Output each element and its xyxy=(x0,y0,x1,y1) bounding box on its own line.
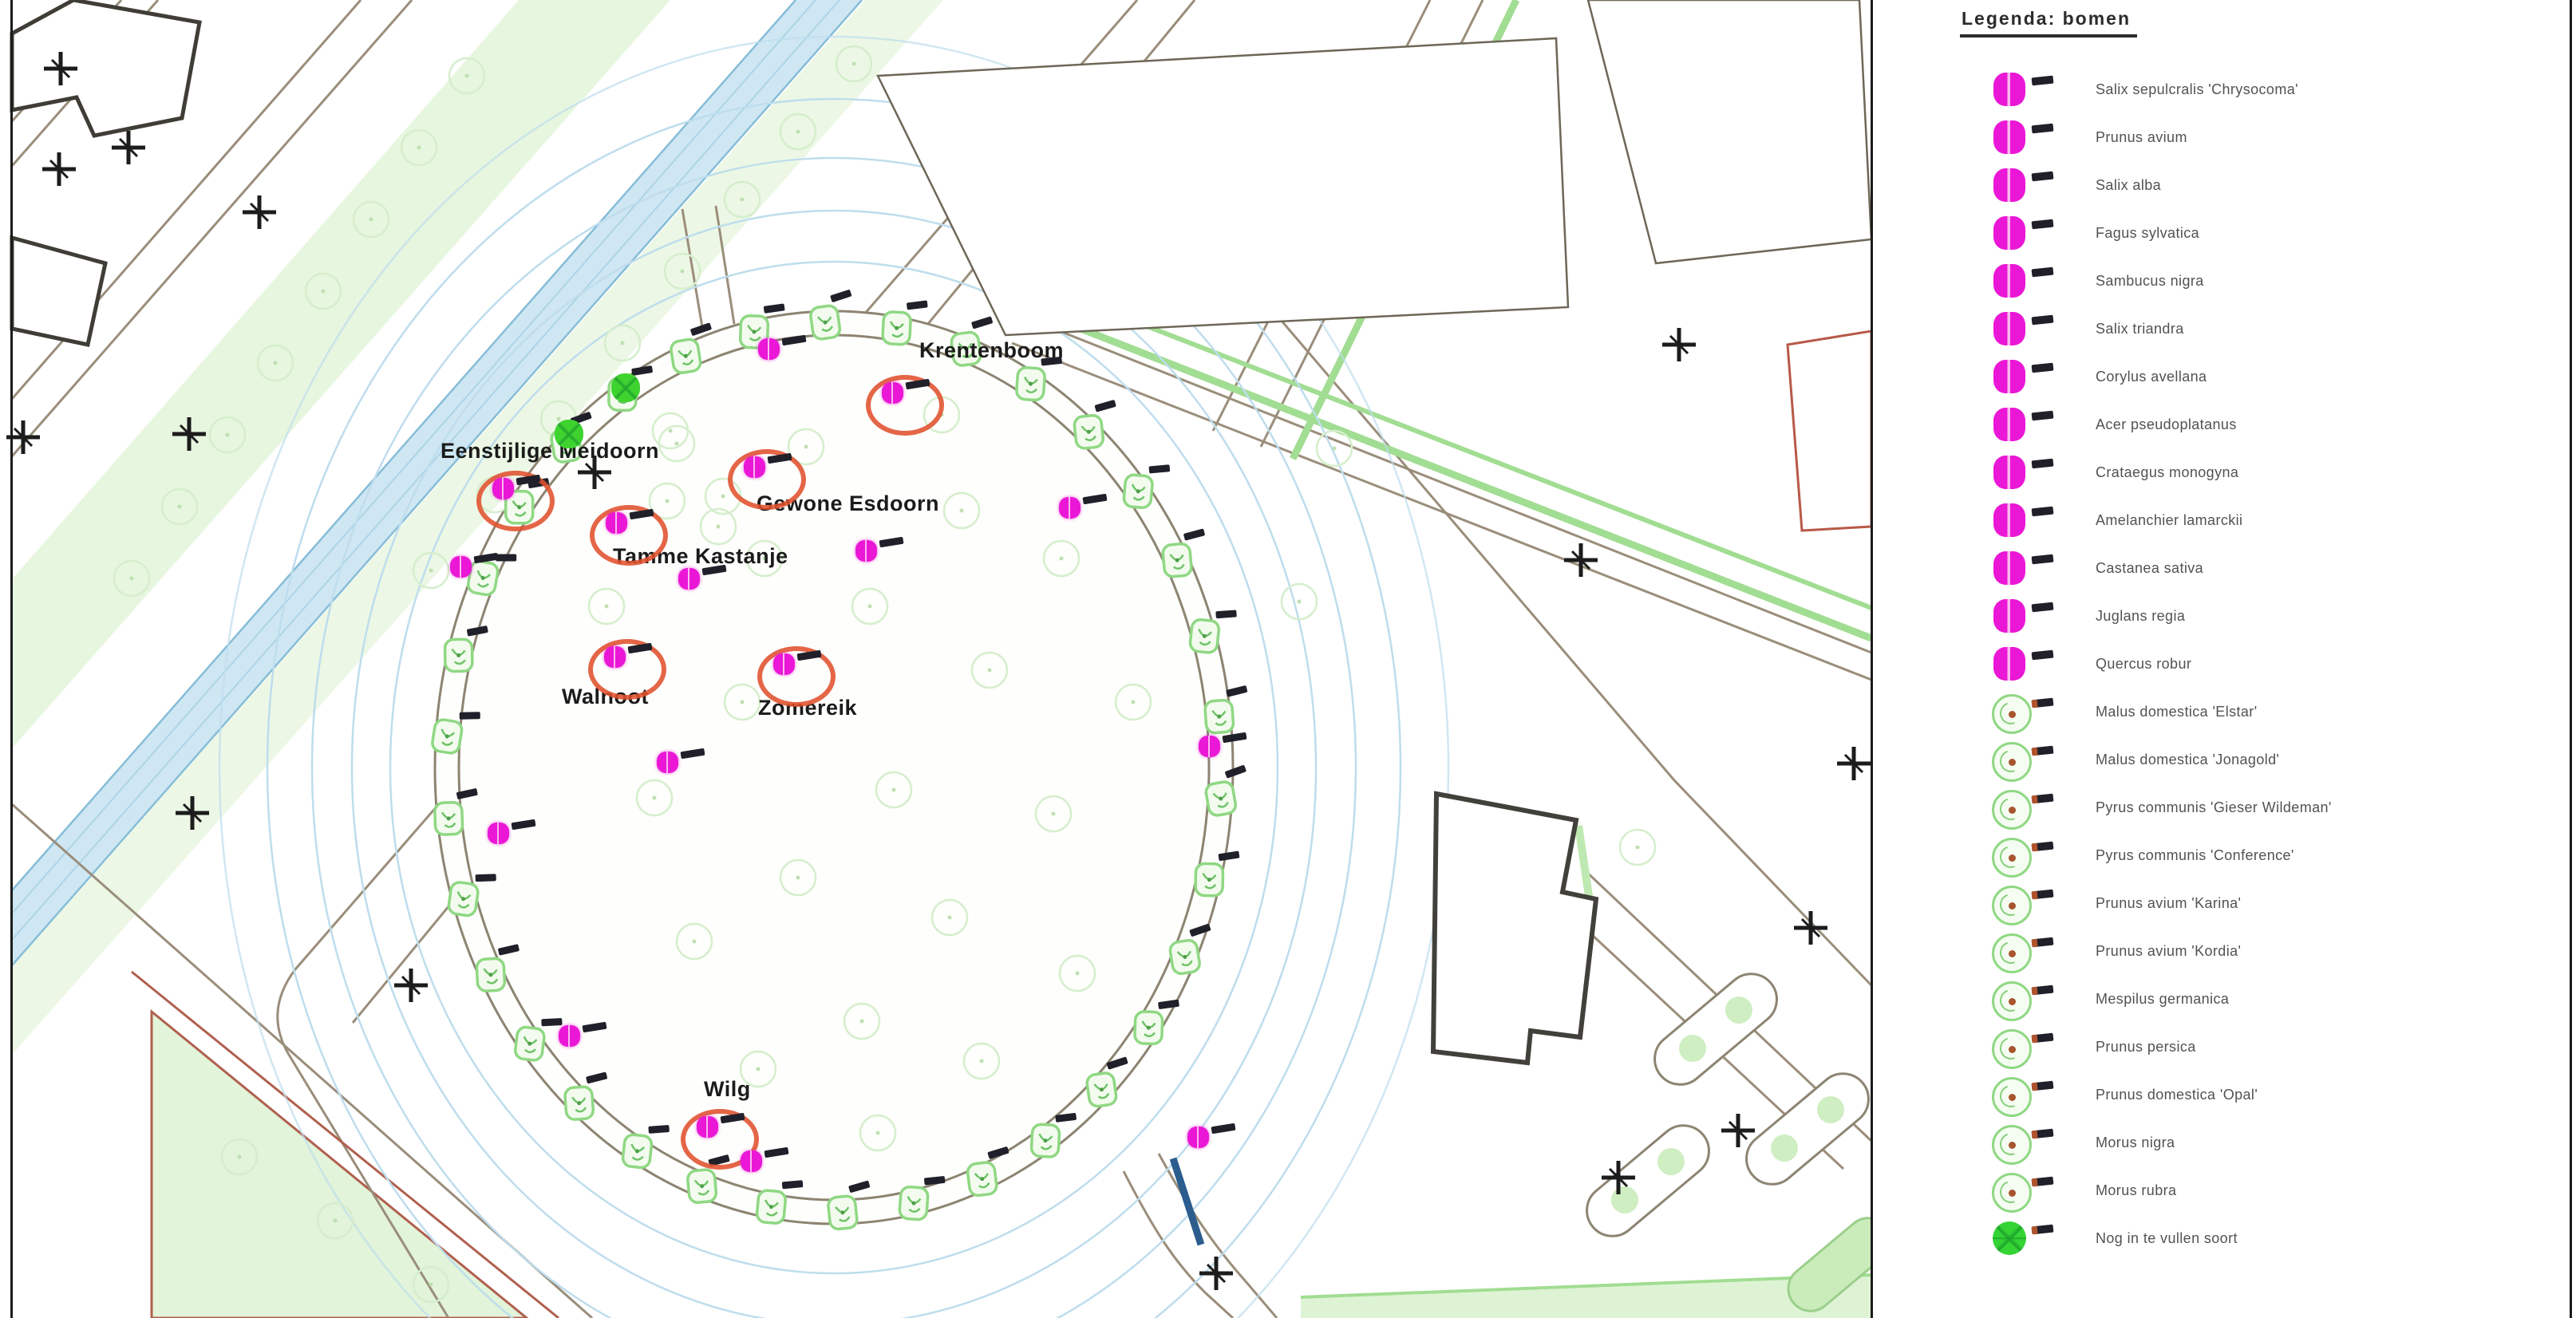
magenta-tree-icon xyxy=(1993,599,2025,633)
legend-symbol-cell xyxy=(1947,161,2096,209)
legend-panel: Legenda: bomen Salix sepulcralis 'Chryso… xyxy=(1947,8,2562,37)
tree-id-tag xyxy=(2032,363,2054,373)
planted-tree-dot xyxy=(559,1025,580,1047)
legend-item: Juglans regia xyxy=(1947,592,2562,640)
new-tree-blob xyxy=(611,373,640,402)
planted-tree-dot xyxy=(744,456,765,478)
tree-id-tag xyxy=(2032,794,2054,804)
tree-id-tag xyxy=(2032,937,2054,948)
map-overlay: KrentenboomEenstijlige MeidoornGewone Es… xyxy=(0,0,1871,1318)
magenta-tree-icon xyxy=(1993,503,2025,537)
green-tree-tree-icon xyxy=(1992,1125,2032,1165)
map-frame-right xyxy=(1871,0,1873,1318)
legend-item: Sambucus nigra xyxy=(1947,257,2562,305)
planted-tree-dot xyxy=(450,556,472,578)
magenta-tree-icon xyxy=(1993,312,2025,345)
planted-tree-dot xyxy=(741,1150,762,1172)
green-solid-tree-icon xyxy=(1993,1221,2026,1255)
legend-symbol-cell xyxy=(1947,257,2096,305)
legend-label: Sambucus nigra xyxy=(2096,273,2204,290)
legend-symbol-cell xyxy=(1947,1119,2096,1166)
legend-symbol-cell xyxy=(1947,209,2096,257)
legend-rows: Salix sepulcralis 'Chrysocoma'Prunus avi… xyxy=(1947,65,2562,1262)
legend-item: Salix sepulcralis 'Chrysocoma' xyxy=(1947,65,2562,113)
magenta-tree-icon xyxy=(1993,647,2025,681)
tree-id-tag xyxy=(511,819,535,831)
legend-label: Prunus avium xyxy=(2096,129,2187,146)
green-tree-tree-icon xyxy=(1992,981,2032,1021)
legend-item: Prunus avium 'Karina' xyxy=(1947,879,2562,927)
legend-symbol-cell xyxy=(1947,544,2096,592)
legend-label: Prunus persica xyxy=(2096,1039,2196,1056)
tree-id-tag xyxy=(2032,1033,2054,1044)
planted-tree-dot xyxy=(604,646,626,668)
legend-label: Amelanchier lamarckii xyxy=(2096,512,2242,529)
legend-label: Nog in te vullen soort xyxy=(2096,1230,2238,1247)
planted-tree-dot xyxy=(773,653,795,675)
legend-item: Castanea sativa xyxy=(1947,544,2562,592)
legend-symbol-cell xyxy=(1947,496,2096,544)
tree-id-tag xyxy=(2032,746,2054,756)
sheet-edge-right xyxy=(2570,0,2572,1318)
legend-label: Acer pseudoplatanus xyxy=(2096,416,2237,433)
tree-id-tag xyxy=(2032,507,2054,517)
legend-label: Prunus avium 'Karina' xyxy=(2096,895,2241,912)
tree-id-tag xyxy=(764,1147,788,1158)
planted-tree-dot xyxy=(697,1116,718,1138)
site-plan-screenshot: KrentenboomEenstijlige MeidoornGewone Es… xyxy=(0,0,2576,1318)
tree-id-tag xyxy=(2032,124,2054,134)
planted-tree-dot xyxy=(882,382,903,404)
legend-label: Prunus domestica 'Opal' xyxy=(2096,1087,2258,1103)
new-tree-blob xyxy=(555,420,583,448)
map-frame-left xyxy=(10,0,13,1318)
planted-tree-dot xyxy=(758,338,780,360)
legend-item: Crataegus monogyna xyxy=(1947,448,2562,496)
legend-item: Prunus avium xyxy=(1947,113,2562,161)
legend-item: Nog in te vullen soort xyxy=(1947,1214,2562,1262)
magenta-tree-icon xyxy=(1993,264,2025,298)
legend-symbol-cell xyxy=(1947,736,2096,783)
tree-name-label: Eenstijlige Meidoorn xyxy=(441,439,659,464)
legend-item: Quercus robur xyxy=(1947,640,2562,688)
planted-tree-dot xyxy=(657,752,678,773)
legend-label: Morus rubra xyxy=(2096,1182,2176,1199)
legend-label: Malus domestica 'Elstar' xyxy=(2096,704,2258,720)
tree-id-tag xyxy=(2032,411,2054,421)
tree-id-tag xyxy=(2032,890,2054,900)
green-tree-tree-icon xyxy=(1992,790,2032,830)
legend-item: Acer pseudoplatanus xyxy=(1947,401,2562,448)
legend-item: Morus rubra xyxy=(1947,1166,2562,1214)
tree-id-tag xyxy=(2032,267,2054,278)
legend-label: Juglans regia xyxy=(2096,608,2185,625)
green-tree-tree-icon xyxy=(1992,742,2032,782)
planted-tree-dot xyxy=(488,823,509,844)
legend-label: Pyrus communis 'Gieser Wildeman' xyxy=(2096,799,2332,816)
tree-id-tag xyxy=(2032,698,2054,708)
tree-id-tag xyxy=(1222,732,1247,744)
tree-id-tag xyxy=(2032,219,2054,230)
magenta-tree-icon xyxy=(1993,360,2025,393)
legend-symbol-cell xyxy=(1947,879,2096,927)
tree-id-tag xyxy=(473,553,498,564)
legend-symbol-cell xyxy=(1947,448,2096,496)
legend-item: Corylus avellana xyxy=(1947,353,2562,401)
legend-item: Pyrus communis 'Gieser Wildeman' xyxy=(1947,783,2562,831)
tree-id-tag xyxy=(2032,1129,2054,1139)
magenta-tree-icon xyxy=(1993,408,2025,441)
legend-item: Prunus persica xyxy=(1947,1023,2562,1071)
legend-label: Prunus avium 'Kordia' xyxy=(2096,943,2241,960)
tree-id-tag xyxy=(2032,315,2054,326)
legend-label: Crataegus monogyna xyxy=(2096,464,2238,481)
tree-id-tag xyxy=(879,537,903,548)
tree-id-tag xyxy=(582,1022,606,1033)
planted-tree-dot xyxy=(1059,497,1081,519)
tree-id-tag xyxy=(2032,650,2054,661)
tree-id-tag xyxy=(2032,459,2054,469)
tree-id-tag xyxy=(2032,1225,2054,1235)
legend-title: Legenda: bomen xyxy=(1960,8,2137,37)
planted-tree-dot xyxy=(855,540,877,562)
tree-id-tag xyxy=(2032,1177,2054,1187)
legend-symbol-cell xyxy=(1947,305,2096,353)
tree-id-tag xyxy=(2032,842,2054,852)
green-tree-tree-icon xyxy=(1992,1077,2032,1117)
legend-symbol-cell xyxy=(1947,783,2096,831)
magenta-tree-icon xyxy=(1993,216,2025,250)
legend-item: Prunus domestica 'Opal' xyxy=(1947,1071,2562,1119)
magenta-tree-icon xyxy=(1993,456,2025,489)
planted-tree-dot xyxy=(1187,1127,1209,1148)
legend-label: Salix sepulcralis 'Chrysocoma' xyxy=(2096,81,2298,98)
tree-id-tag xyxy=(2032,602,2054,613)
legend-item: Pyrus communis 'Conference' xyxy=(1947,831,2562,879)
tree-id-tag xyxy=(2032,76,2054,86)
legend-symbol-cell xyxy=(1947,401,2096,448)
legend-label: Pyrus communis 'Conference' xyxy=(2096,847,2294,864)
magenta-tree-icon xyxy=(1993,73,2025,106)
tree-id-tag xyxy=(781,335,806,346)
legend-label: Mespilus germanica xyxy=(2096,991,2229,1008)
legend-label: Salix alba xyxy=(2096,177,2161,194)
legend-item: Amelanchier lamarckii xyxy=(1947,496,2562,544)
magenta-tree-icon xyxy=(1993,551,2025,585)
legend-symbol-cell xyxy=(1947,1023,2096,1071)
tree-id-tag xyxy=(2032,172,2054,182)
legend-item: Morus nigra xyxy=(1947,1119,2562,1166)
legend-item: Fagus sylvatica xyxy=(1947,209,2562,257)
legend-symbol-cell xyxy=(1947,975,2096,1023)
legend-item: Malus domestica 'Elstar' xyxy=(1947,688,2562,736)
legend-item: Mespilus germanica xyxy=(1947,975,2562,1023)
legend-label: Fagus sylvatica xyxy=(2096,225,2199,242)
legend-symbol-cell xyxy=(1947,1071,2096,1119)
tree-id-tag xyxy=(1211,1123,1235,1135)
tree-id-tag xyxy=(2032,554,2054,565)
green-tree-tree-icon xyxy=(1992,694,2032,734)
tree-id-tag xyxy=(2032,985,2054,996)
tree-name-label: Wilg xyxy=(704,1077,751,1102)
legend-label: Castanea sativa xyxy=(2096,560,2203,577)
legend-symbol-cell xyxy=(1947,831,2096,879)
legend-item: Prunus avium 'Kordia' xyxy=(1947,927,2562,975)
legend-label: Morus nigra xyxy=(2096,1135,2175,1151)
legend-label: Quercus robur xyxy=(2096,656,2191,673)
legend-symbol-cell xyxy=(1947,1214,2096,1262)
tree-id-tag xyxy=(680,748,705,760)
legend-symbol-cell xyxy=(1947,1166,2096,1214)
legend-symbol-cell xyxy=(1947,113,2096,161)
legend-item: Salix alba xyxy=(1947,161,2562,209)
legend-label: Corylus avellana xyxy=(2096,369,2207,385)
green-tree-tree-icon xyxy=(1992,1173,2032,1213)
planted-tree-dot xyxy=(492,478,514,499)
tree-id-tag xyxy=(1082,494,1107,505)
legend-symbol-cell xyxy=(1947,353,2096,401)
planted-tree-dot xyxy=(1199,736,1220,757)
green-tree-tree-icon xyxy=(1992,933,2032,973)
tree-id-tag xyxy=(2032,1081,2054,1091)
green-tree-tree-icon xyxy=(1992,886,2032,925)
magenta-tree-icon xyxy=(1993,120,2025,154)
legend-item: Malus domestica 'Jonagold' xyxy=(1947,736,2562,783)
magenta-tree-icon xyxy=(1993,168,2025,202)
legend-label: Salix triandra xyxy=(2096,321,2184,337)
green-tree-tree-icon xyxy=(1992,1029,2032,1069)
green-tree-tree-icon xyxy=(1992,838,2032,878)
planted-tree-dot xyxy=(606,512,627,534)
legend-symbol-cell xyxy=(1947,688,2096,736)
legend-symbol-cell xyxy=(1947,65,2096,113)
legend-symbol-cell xyxy=(1947,640,2096,688)
legend-item: Salix triandra xyxy=(1947,305,2562,353)
legend-symbol-cell xyxy=(1947,927,2096,975)
legend-symbol-cell xyxy=(1947,592,2096,640)
tree-name-label: Krentenboom xyxy=(919,338,1064,363)
planted-tree-dot xyxy=(678,568,700,590)
legend-label: Malus domestica 'Jonagold' xyxy=(2096,752,2279,768)
